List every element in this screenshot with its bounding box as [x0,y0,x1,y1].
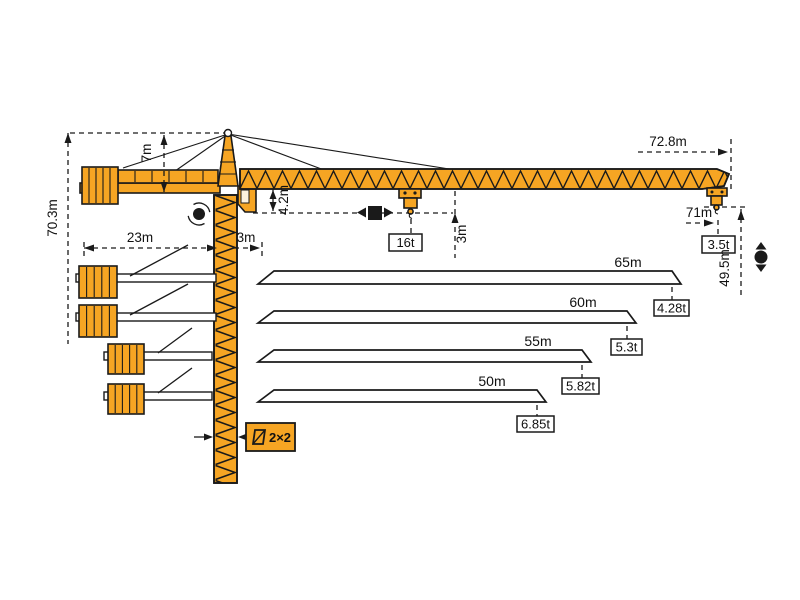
hoisting-icon [755,242,768,272]
counterjib [80,167,220,204]
dim-apex-height-label: 7m [139,144,154,163]
row-65m-capacity: 4.28t [657,301,686,316]
row-60m-capacity: 5.3t [616,340,638,355]
trolley-travel-icon [357,206,393,220]
crane-diagram-svg: 70.3m 7m 23m 3m 4.2m 3m 16t [0,0,800,600]
counterweight-config-row [76,245,216,298]
counterweight-config-row [104,328,212,374]
slewing-icon [188,203,210,225]
dim-max-radius: 71m [686,205,714,227]
dim-rear-offset: 3m [234,230,262,256]
max-capacity-label: 16t [396,235,414,250]
dim-counterjib-length: 23m [84,230,217,257]
counterweight-ballast [82,167,118,204]
load-chart-row-55m: 55m 5.82t [258,333,599,394]
dim-jib-overall-label: 72.8m [649,134,687,149]
load-chart: 65m 4.28t 60m 5.3t 55m 5.82t 50m 6.85t [258,254,689,432]
apex-pin [225,130,232,137]
dim-jib-root-height: 4.2m [270,185,292,215]
jib [240,169,729,189]
counterweight-configs [76,245,216,414]
load-chart-row-65m: 65m 4.28t [258,254,689,316]
row-60m-length: 60m [569,294,596,310]
load-chart-row-50m: 50m 6.85t [258,373,554,432]
dim-hook-clearance: 3m [452,191,470,258]
row-50m-length: 50m [478,373,505,389]
load-chart-row-60m: 60m 5.3t [258,294,642,355]
dim-hook-clearance-label: 3m [454,225,469,244]
tower-head [218,130,238,187]
max-capacity-callout: 16t [389,219,422,251]
trolley-hook [399,189,421,219]
mast-section-label: 2×2 [269,430,291,445]
dim-hook-height-label: 49.5m [717,249,732,287]
dim-hook-height: 49.5m [717,209,745,296]
dim-counterjib-length-label: 23m [127,230,153,245]
row-55m-capacity: 5.82t [566,379,595,394]
row-55m-length: 55m [524,333,551,349]
dim-rear-offset-label: 3m [237,230,256,245]
mast-section-note: 2×2 [194,423,295,451]
dim-jib-root-height-label: 4.2m [276,185,291,215]
dim-total-height: 70.3m [45,133,72,344]
crane-diagram: 70.3m 7m 23m 3m 4.2m 3m 16t [0,0,800,600]
tower-mast [214,195,237,483]
dim-total-height-label: 70.3m [45,199,60,237]
row-65m-length: 65m [614,254,641,270]
row-50m-capacity: 6.85t [521,417,550,432]
dim-max-radius-label: 71m [686,205,712,220]
counterweight-config-row [104,368,212,414]
